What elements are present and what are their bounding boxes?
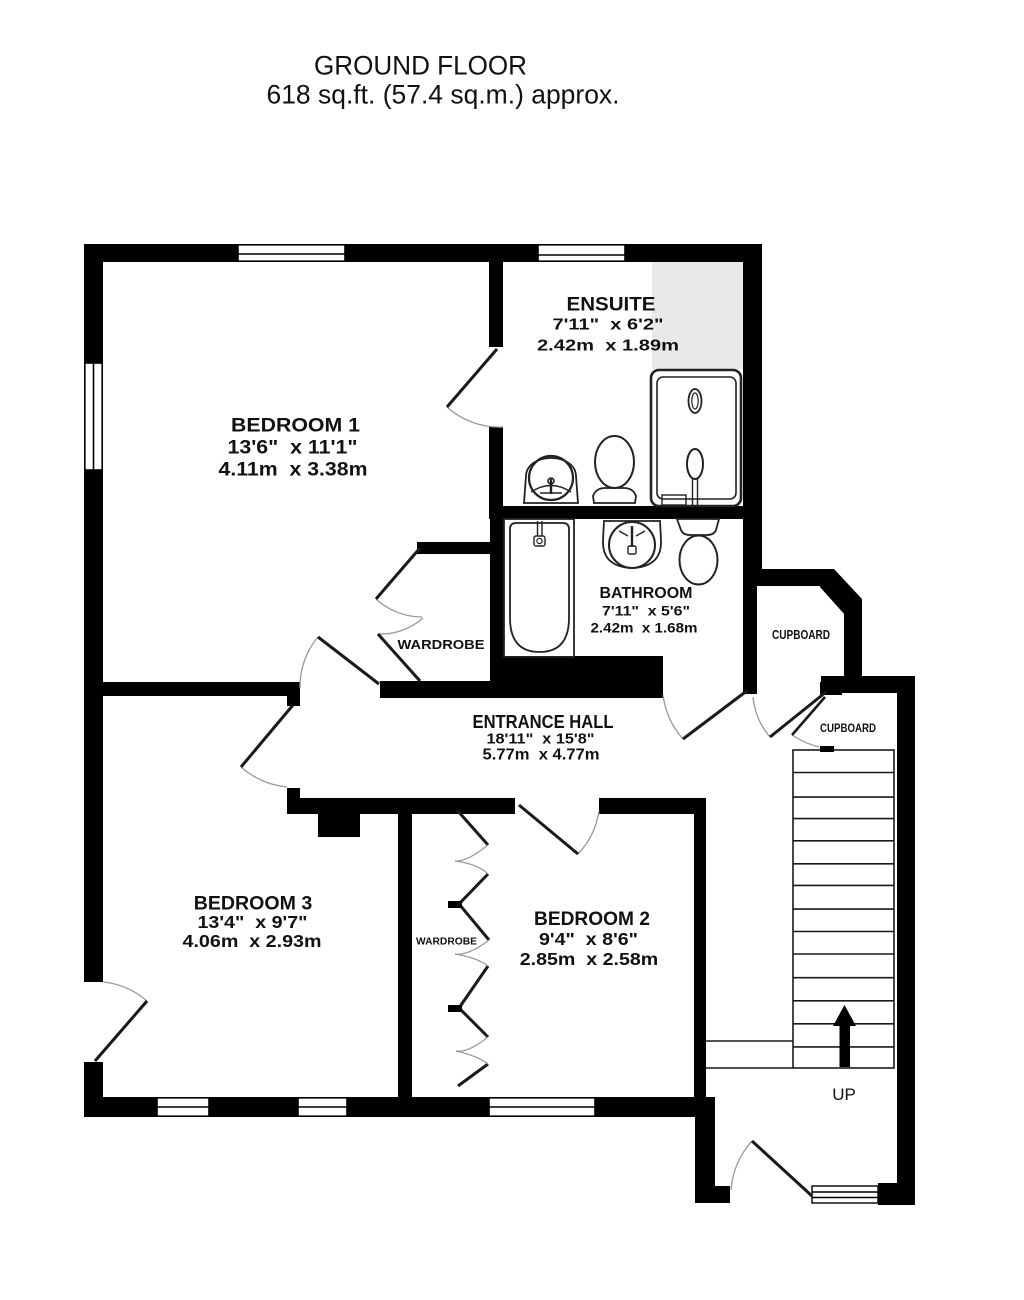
svg-text:18'11" x 15'8": 18'11" x 15'8"	[487, 731, 595, 748]
svg-text:618 sq.ft. (57.4 sq.m.) approx: 618 sq.ft. (57.4 sq.m.) approx.	[267, 80, 620, 110]
svg-text:UP: UP	[832, 1085, 856, 1104]
svg-text:5.77m x 4.77m: 5.77m x 4.77m	[483, 747, 600, 764]
svg-text:WARDROBE: WARDROBE	[416, 937, 477, 948]
svg-text:13'6" x 11'1": 13'6" x 11'1"	[228, 437, 358, 459]
svg-text:2.42m x 1.68m: 2.42m x 1.68m	[591, 621, 698, 636]
svg-text:7'11" x 6'2": 7'11" x 6'2"	[553, 317, 664, 334]
svg-text:CUPBOARD: CUPBOARD	[772, 628, 830, 642]
svg-text:9'4" x 8'6": 9'4" x 8'6"	[539, 929, 638, 949]
svg-text:2.85m x 2.58m: 2.85m x 2.58m	[520, 949, 659, 969]
svg-text:4.06m x 2.93m: 4.06m x 2.93m	[183, 931, 322, 951]
svg-text:4.11m x 3.38m: 4.11m x 3.38m	[219, 459, 368, 481]
svg-text:BATHROOM: BATHROOM	[600, 585, 693, 602]
svg-text:ENSUITE: ENSUITE	[567, 295, 656, 316]
svg-text:BEDROOM 2: BEDROOM 2	[534, 908, 650, 930]
svg-text:CUPBOARD: CUPBOARD	[820, 721, 876, 735]
svg-text:BEDROOM 1: BEDROOM 1	[231, 415, 360, 437]
svg-text:2.42m x 1.89m: 2.42m x 1.89m	[537, 338, 679, 355]
svg-text:GROUND FLOOR: GROUND FLOOR	[314, 51, 527, 81]
svg-text:13'4" x 9'7": 13'4" x 9'7"	[198, 912, 308, 932]
svg-text:7'11" x 5'6": 7'11" x 5'6"	[602, 604, 690, 619]
svg-text:WARDROBE: WARDROBE	[398, 637, 485, 652]
svg-text:ENTRANCE HALL: ENTRANCE HALL	[473, 712, 614, 732]
